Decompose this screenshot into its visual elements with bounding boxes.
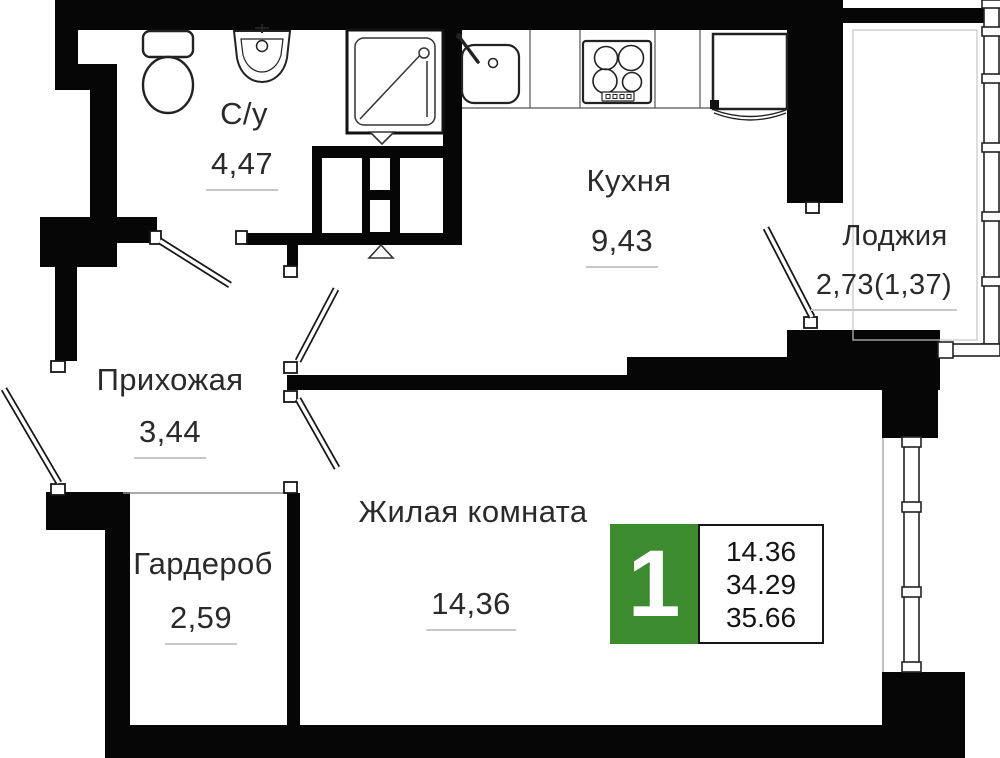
bathroom-label: С/у: [220, 96, 268, 132]
living-room-window: [902, 437, 921, 672]
loggia-label: Лоджия: [842, 220, 947, 253]
living-room-area: 14,36: [426, 586, 516, 631]
stove-icon: [583, 41, 651, 103]
kitchen-door-leaf: [298, 289, 336, 361]
washbasin-icon: [234, 24, 290, 82]
loggia-door-leaf: [766, 228, 812, 317]
loggia-area: 2,73(1,37): [811, 269, 957, 311]
bathroom-door-leaf: [160, 241, 230, 285]
kitchen-area: 9,43: [586, 223, 658, 268]
rooms-count-badge: 1: [610, 524, 698, 644]
living-room-label: Жилая комната: [358, 494, 587, 530]
total-area-value: 35.66: [726, 601, 796, 634]
kitchen-sink-icon: [456, 33, 519, 103]
apartment-info-badge: 1 14.36 34.29 35.66: [610, 524, 824, 644]
wardrobe-area: 2,59: [165, 600, 237, 645]
shower-icon: [347, 30, 443, 133]
bathroom-area: 4,47: [206, 146, 278, 191]
areas-panel: 14.36 34.29 35.66: [698, 524, 824, 644]
apartment-area-value: 34.29: [726, 568, 796, 601]
hallway-label: Прихожая: [97, 362, 244, 398]
floor-plan: С/у 4,47 Кухня 9,43 Лоджия 2,73(1,37) Пр…: [0, 0, 1000, 758]
vent-triangle-icon: [369, 245, 393, 258]
fridge-icon: [710, 34, 787, 120]
toilet-icon: [143, 31, 193, 113]
hallway-area: 3,44: [134, 414, 206, 459]
vent-triangle-icon: [370, 132, 394, 144]
entrance-door-leaf: [4, 389, 59, 483]
kitchen-label: Кухня: [587, 163, 672, 199]
living-room-door-leaf: [298, 399, 337, 468]
living-area-value: 14.36: [726, 535, 796, 568]
wardrobe-label: Гардероб: [133, 546, 273, 582]
